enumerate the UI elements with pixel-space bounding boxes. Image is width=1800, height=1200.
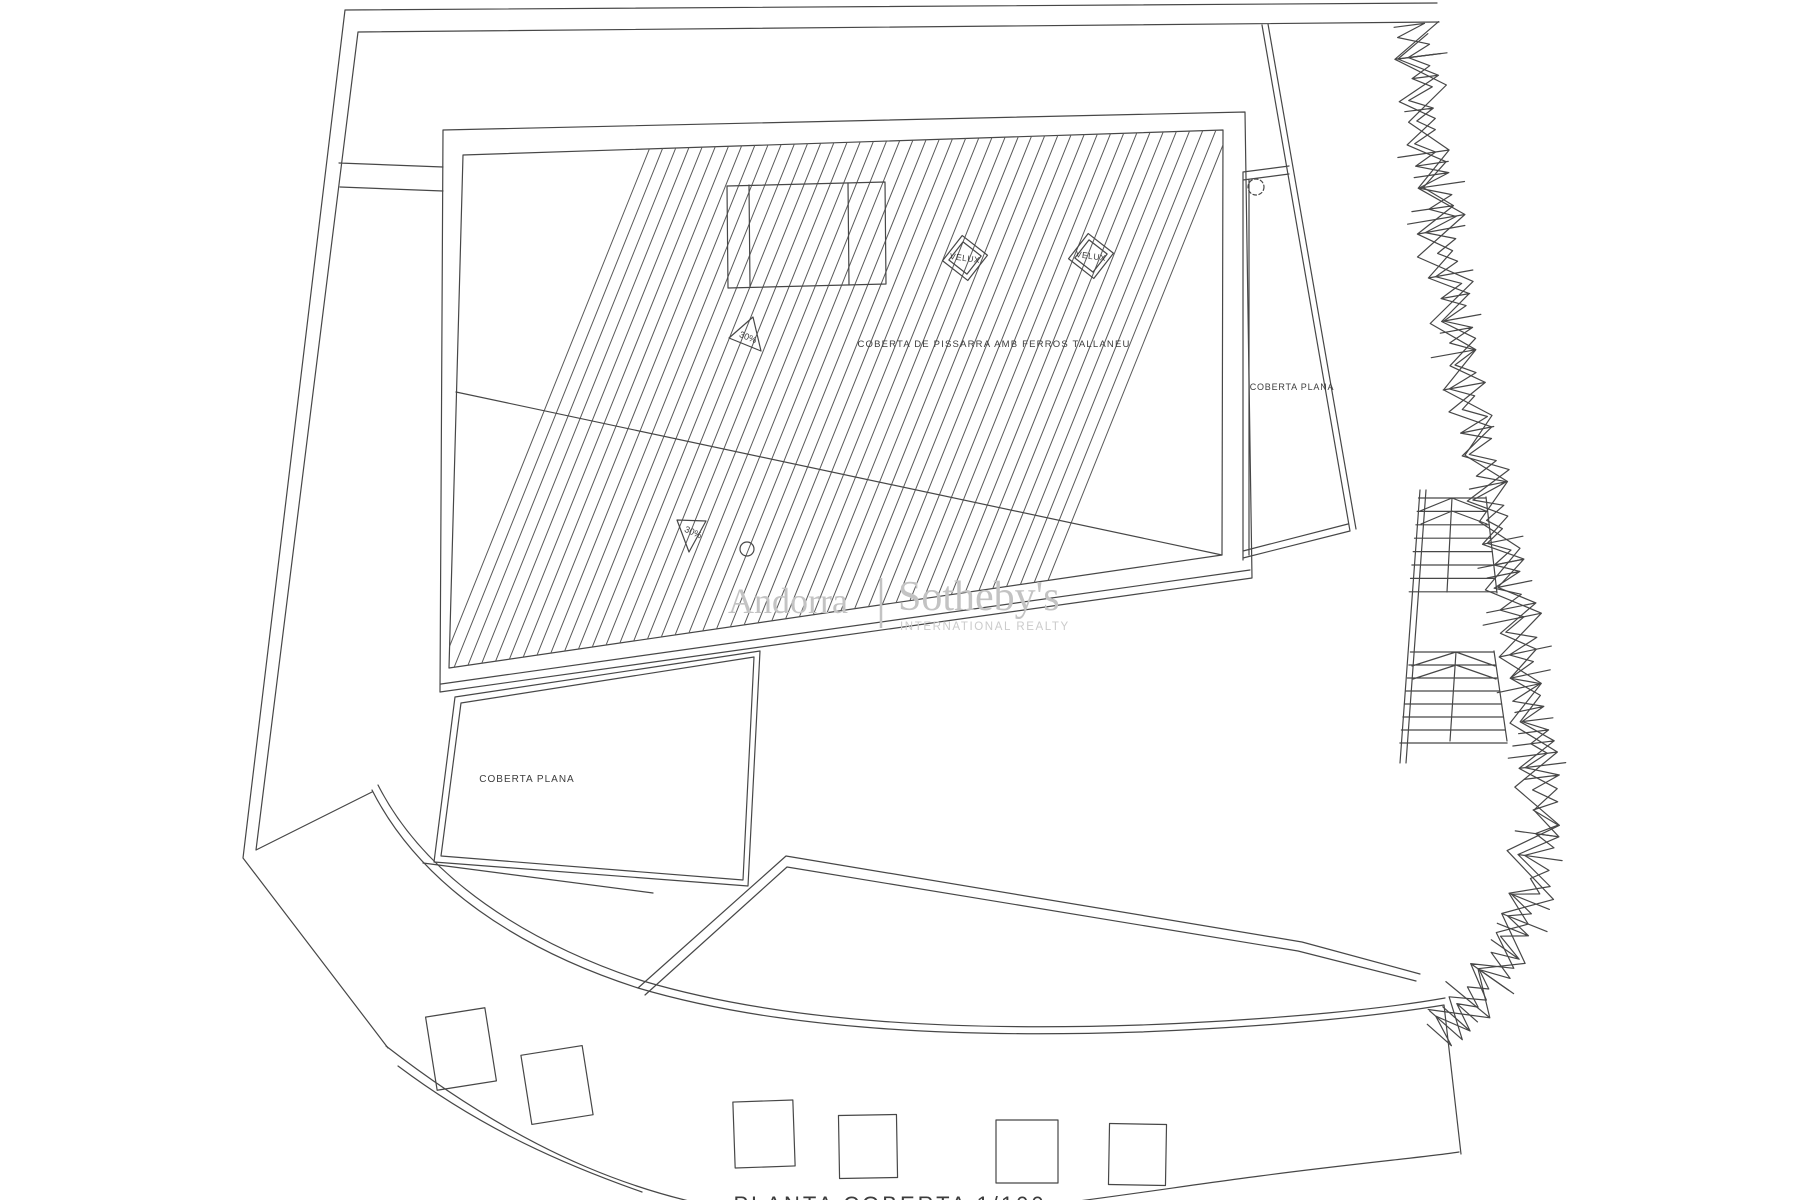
- planter-2: [521, 1046, 593, 1125]
- right-terrace: [1243, 24, 1356, 560]
- main-roof-label: COBERTA DE PISSARRA AMB FERROS TALLANEU: [857, 339, 1130, 350]
- slope-scribble-band: [1394, 22, 1566, 1046]
- velux-label-1: VELUX: [949, 251, 980, 265]
- planter-4: [838, 1114, 897, 1178]
- roof-plan-drawing: VELUX VELUX 30% 30% COBERTA DE PISSARRA …: [0, 0, 1800, 1200]
- exterior-stairs: [1400, 490, 1507, 763]
- site-boundary: [243, 3, 1439, 1048]
- watermark-left: Andorra: [728, 581, 848, 621]
- left-terrace-label: COBERTA PLANA: [479, 774, 574, 785]
- planter-5: [996, 1120, 1058, 1183]
- driveway-planters: [426, 1008, 1167, 1186]
- watermark: Andorra Sotheby's INTERNATIONAL REALTY: [728, 574, 1070, 633]
- watermark-subtitle: INTERNATIONAL REALTY: [900, 621, 1070, 633]
- planter-3: [733, 1100, 795, 1168]
- slope-label-lower: 30%: [683, 524, 704, 540]
- velux-skylight-1: VELUX: [943, 236, 988, 281]
- right-terrace-label: COBERTA PLANA: [1250, 382, 1335, 392]
- driveway-band: [372, 785, 1461, 1200]
- planter-1: [426, 1008, 497, 1090]
- terrace-drain-circle: [1248, 179, 1264, 195]
- watermark-right: Sotheby's: [898, 574, 1060, 620]
- planter-6: [1108, 1124, 1166, 1186]
- caption-cropped: PLANTA COBERTA 1/100: [733, 1192, 1046, 1200]
